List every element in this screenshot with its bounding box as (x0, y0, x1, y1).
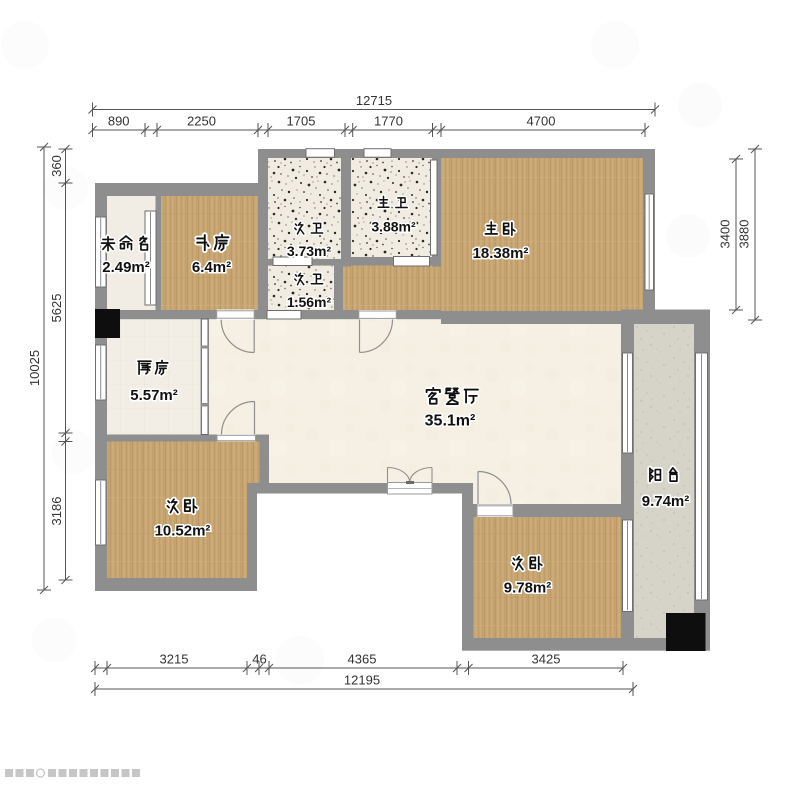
svg-text:4700: 4700 (527, 114, 556, 129)
svg-text:12715: 12715 (356, 93, 392, 108)
svg-text:4365: 4365 (348, 652, 377, 667)
svg-text:5.57m²: 5.57m² (130, 387, 178, 404)
svg-text:1770: 1770 (374, 114, 403, 129)
svg-text:5625: 5625 (49, 294, 64, 323)
svg-text:2250: 2250 (187, 114, 216, 129)
svg-text:3.73m²: 3.73m² (287, 243, 332, 259)
svg-text:3.88m²: 3.88m² (371, 219, 416, 235)
svg-text:12195: 12195 (344, 673, 380, 688)
svg-text:6.4m²: 6.4m² (192, 259, 231, 276)
svg-text:3425: 3425 (532, 652, 561, 667)
svg-text:18.38m²: 18.38m² (473, 245, 529, 262)
svg-text:1.56m²: 1.56m² (287, 294, 332, 310)
svg-text:3880: 3880 (737, 220, 752, 249)
svg-text:3186: 3186 (49, 497, 64, 526)
svg-text:10.52m²: 10.52m² (155, 523, 211, 540)
svg-text:3400: 3400 (718, 220, 733, 249)
svg-text:9.74m²: 9.74m² (642, 493, 690, 510)
svg-text:3215: 3215 (160, 652, 189, 667)
svg-text:46: 46 (252, 652, 266, 667)
svg-text:2.49m²: 2.49m² (102, 259, 150, 276)
svg-text:890: 890 (108, 114, 130, 129)
svg-text:9.78m²: 9.78m² (504, 580, 552, 597)
svg-text:10025: 10025 (27, 350, 42, 386)
svg-text:35.1m²: 35.1m² (425, 413, 476, 430)
svg-text:1705: 1705 (287, 114, 316, 129)
svg-text:360: 360 (49, 155, 64, 177)
